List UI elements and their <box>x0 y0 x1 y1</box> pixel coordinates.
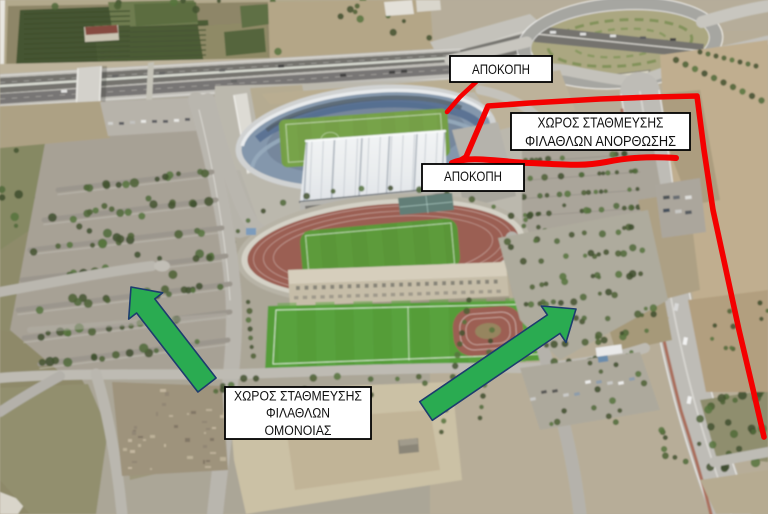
svg-text:ΑΠΟΚΟΠΗ: ΑΠΟΚΟΠΗ <box>444 168 502 184</box>
svg-text:ΧΩΡΟΣ ΣΤΑΘΜΕΥΣΗΣ: ΧΩΡΟΣ ΣΤΑΘΜΕΥΣΗΣ <box>234 388 362 403</box>
svg-text:ΦΙΛΑΘΛΩΝ ΑΝΟΡΘΩΣΗΣ: ΦΙΛΑΘΛΩΝ ΑΝΟΡΘΩΣΗΣ <box>525 134 676 150</box>
svg-text:ΧΩΡΟΣ ΣΤΑΘΜΕΥΣΗΣ: ΧΩΡΟΣ ΣΤΑΘΜΕΥΣΗΣ <box>538 115 664 131</box>
svg-text:ΦΙΛΑΘΛΩΝ: ΦΙΛΑΘΛΩΝ <box>266 406 330 421</box>
svg-text:ΑΠΟΚΟΠΗ: ΑΠΟΚΟΠΗ <box>472 61 530 77</box>
svg-text:ΟΜΟΝΟΙΑΣ: ΟΜΟΝΟΙΑΣ <box>265 423 332 438</box>
